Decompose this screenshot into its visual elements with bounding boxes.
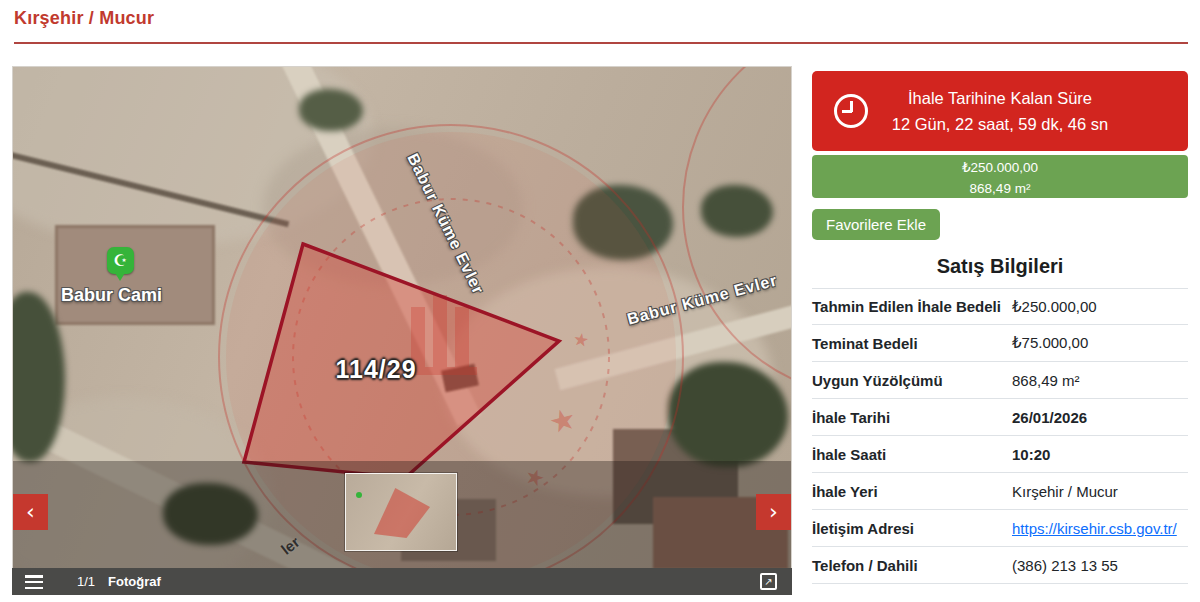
table-row: İhale Tarihi26/01/2026 bbox=[812, 399, 1188, 436]
contact-link[interactable]: https://kirsehir.csb.gov.tr/ bbox=[1012, 520, 1177, 537]
table-row: Telefon / Dahili(386) 213 13 55 bbox=[812, 547, 1188, 584]
auction-detail-page: Kırşehir / Mucur bbox=[0, 0, 1200, 602]
photo-list-icon[interactable] bbox=[25, 575, 43, 589]
row-label: Telefon / Dahili bbox=[812, 557, 1012, 574]
photo-thumbnail[interactable] bbox=[345, 473, 457, 551]
photo-viewer: ★ ★ ★ ★ 114/29 Babur Küme Evler Babur Kü… bbox=[12, 66, 792, 595]
next-photo-button[interactable]: › bbox=[756, 494, 791, 530]
row-value: ₺75.000,00 bbox=[1012, 334, 1188, 352]
prev-photo-button[interactable]: ‹ bbox=[13, 494, 48, 530]
thumbnail-parcel bbox=[374, 488, 430, 538]
countdown-banner: İhale Tarihine Kalan Süre 12 Gün, 22 saa… bbox=[812, 71, 1188, 151]
row-label: İhale Tarihi bbox=[812, 409, 1012, 426]
countdown-title: İhale Tarihine Kalan Süre bbox=[892, 85, 1108, 111]
price-value: ₺250.000,00 bbox=[812, 158, 1188, 179]
fullscreen-icon[interactable]: ↗ bbox=[760, 573, 777, 590]
table-row: İhale YeriKırşehir / Mucur bbox=[812, 473, 1188, 510]
table-row: İhale Saati10:20 bbox=[812, 436, 1188, 473]
satellite-photo[interactable]: ★ ★ ★ ★ 114/29 Babur Küme Evler Babur Kü… bbox=[12, 66, 792, 568]
row-label: Uygun Yüzölçümü bbox=[812, 372, 1012, 389]
content-row: ★ ★ ★ ★ 114/29 Babur Küme Evler Babur Kü… bbox=[0, 44, 1200, 595]
parcel-number-label: 114/29 bbox=[311, 355, 441, 384]
table-row: İletişim Adresihttps://kirsehir.csb.gov.… bbox=[812, 510, 1188, 547]
viewer-toolbar: 1/1 Fotoğraf ↗ bbox=[12, 568, 792, 595]
table-row: Teminat Bedeli₺75.000,00 bbox=[812, 325, 1188, 362]
row-label: İletişim Adresi bbox=[812, 520, 1012, 537]
sale-info-title: Satış Bilgileri bbox=[812, 255, 1188, 278]
photo-type-label: Fotoğraf bbox=[108, 574, 161, 589]
row-value: 10:20 bbox=[1012, 446, 1188, 463]
photo-counter: 1/1 bbox=[77, 574, 95, 589]
mosque-label: Babur Cami bbox=[61, 285, 162, 306]
table-row: Tahmin Edilen İhale Bedeli₺250.000,00 bbox=[812, 288, 1188, 325]
sale-info-panel: İhale Tarihine Kalan Süre 12 Gün, 22 saa… bbox=[812, 66, 1188, 595]
row-value: ₺250.000,00 bbox=[1012, 298, 1188, 316]
row-label: İhale Saati bbox=[812, 446, 1012, 463]
row-value: 868,49 m² bbox=[1012, 372, 1188, 389]
row-label: İhale Yeri bbox=[812, 483, 1012, 500]
add-to-favorites-button[interactable]: Favorilere Ekle bbox=[812, 209, 940, 240]
row-value: https://kirsehir.csb.gov.tr/ bbox=[1012, 520, 1188, 537]
breadcrumb[interactable]: Kırşehir / Mucur bbox=[14, 8, 1188, 29]
price-banner: ₺250.000,00 868,49 m² bbox=[812, 155, 1188, 198]
row-value: (386) 213 13 55 bbox=[1012, 557, 1188, 574]
countdown-remaining: 12 Gün, 22 saat, 59 dk, 46 sn bbox=[892, 111, 1108, 137]
row-value: Kırşehir / Mucur bbox=[1012, 483, 1188, 500]
row-label: Teminat Bedeli bbox=[812, 335, 1012, 352]
clock-icon bbox=[834, 94, 868, 128]
area-value: 868,49 m² bbox=[812, 179, 1188, 200]
row-label: Tahmin Edilen İhale Bedeli bbox=[812, 298, 1012, 315]
mosque-pin-icon[interactable]: ☪ bbox=[107, 247, 134, 274]
row-value: 26/01/2026 bbox=[1012, 409, 1188, 426]
thumbnail-pin bbox=[356, 492, 362, 498]
page-header: Kırşehir / Mucur bbox=[0, 0, 1200, 44]
sale-info-table: Tahmin Edilen İhale Bedeli₺250.000,00Tem… bbox=[812, 288, 1188, 584]
table-row: Uygun Yüzölçümü868,49 m² bbox=[812, 362, 1188, 399]
